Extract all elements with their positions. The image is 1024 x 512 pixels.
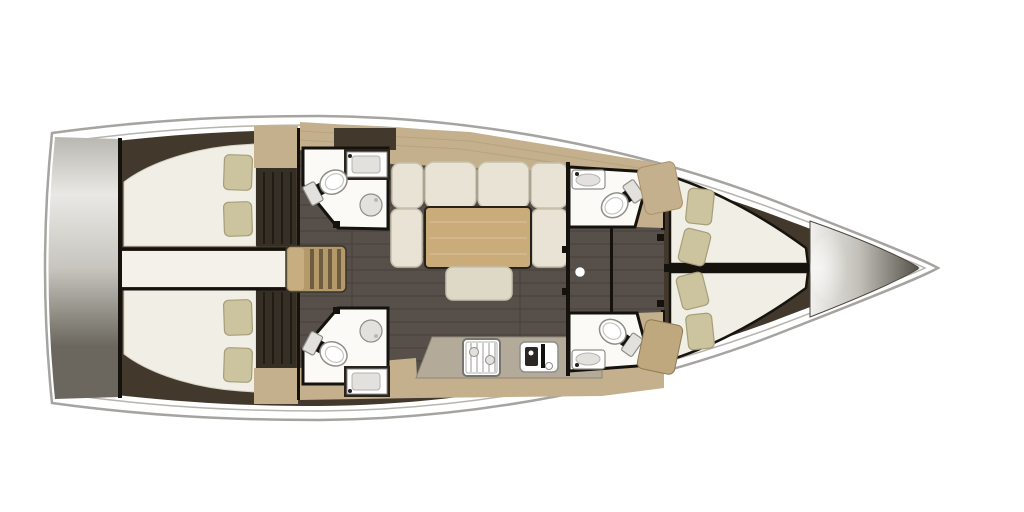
shower-base [360, 194, 382, 216]
swim-platform [49, 137, 123, 399]
berth-pillow [223, 300, 252, 336]
sink-basin [525, 347, 538, 366]
washbasin-faucet [575, 363, 579, 367]
washbasin-faucet [575, 172, 579, 176]
cone-sheen [810, 234, 854, 302]
shower-base [360, 320, 382, 342]
vanity-faucet [348, 154, 352, 158]
forward-cabin [636, 161, 918, 376]
corridor-wall [610, 228, 613, 316]
vanity-sink [352, 156, 380, 173]
sink-drain-right [546, 363, 553, 370]
engine-compartment [122, 249, 298, 289]
yacht-floor-plan: Sailing yacht interior floor plan, top-d… [0, 0, 1024, 512]
washbasin-bowl [576, 353, 600, 365]
sink-drain [529, 351, 534, 356]
vberth-divider [664, 264, 810, 272]
stove-frame [463, 339, 500, 376]
steps-left-cap [288, 248, 304, 290]
settee-seat-left [391, 209, 422, 267]
floor-plan-canvas: Sailing yacht interior floor plan, top-d… [0, 0, 1024, 512]
settee-back-cushion [392, 163, 423, 208]
settee-back-cushion [425, 162, 476, 208]
settee-seat-right [532, 209, 567, 267]
transom-bulkhead [118, 138, 122, 398]
engine-passage [122, 251, 288, 287]
washbasin-bowl [576, 174, 600, 186]
transom-platform [49, 137, 120, 399]
settee-back-cushion [478, 162, 529, 208]
sink-faucet [541, 344, 545, 368]
shower-drain [374, 334, 378, 338]
stove-burner [486, 356, 495, 365]
galley-wood-strip [416, 378, 602, 398]
vanity-sink [352, 373, 380, 390]
ottoman [446, 267, 512, 300]
vanity-faucet [348, 389, 352, 393]
settee-back-cushion [531, 163, 567, 208]
wardrobe-shelf [254, 368, 298, 404]
berth-pillow [685, 313, 715, 351]
berth-pillow [223, 155, 252, 191]
berth-pillow [223, 202, 252, 237]
stove [463, 339, 500, 376]
galley-sink [520, 342, 558, 372]
stove-burner [470, 348, 479, 357]
berth-pillow [223, 348, 252, 383]
wardrobe-shelf [254, 126, 298, 168]
berth-pillow [685, 188, 715, 226]
mast-post [575, 267, 586, 278]
companionway-steps [286, 246, 346, 292]
shower-drain [374, 198, 378, 202]
